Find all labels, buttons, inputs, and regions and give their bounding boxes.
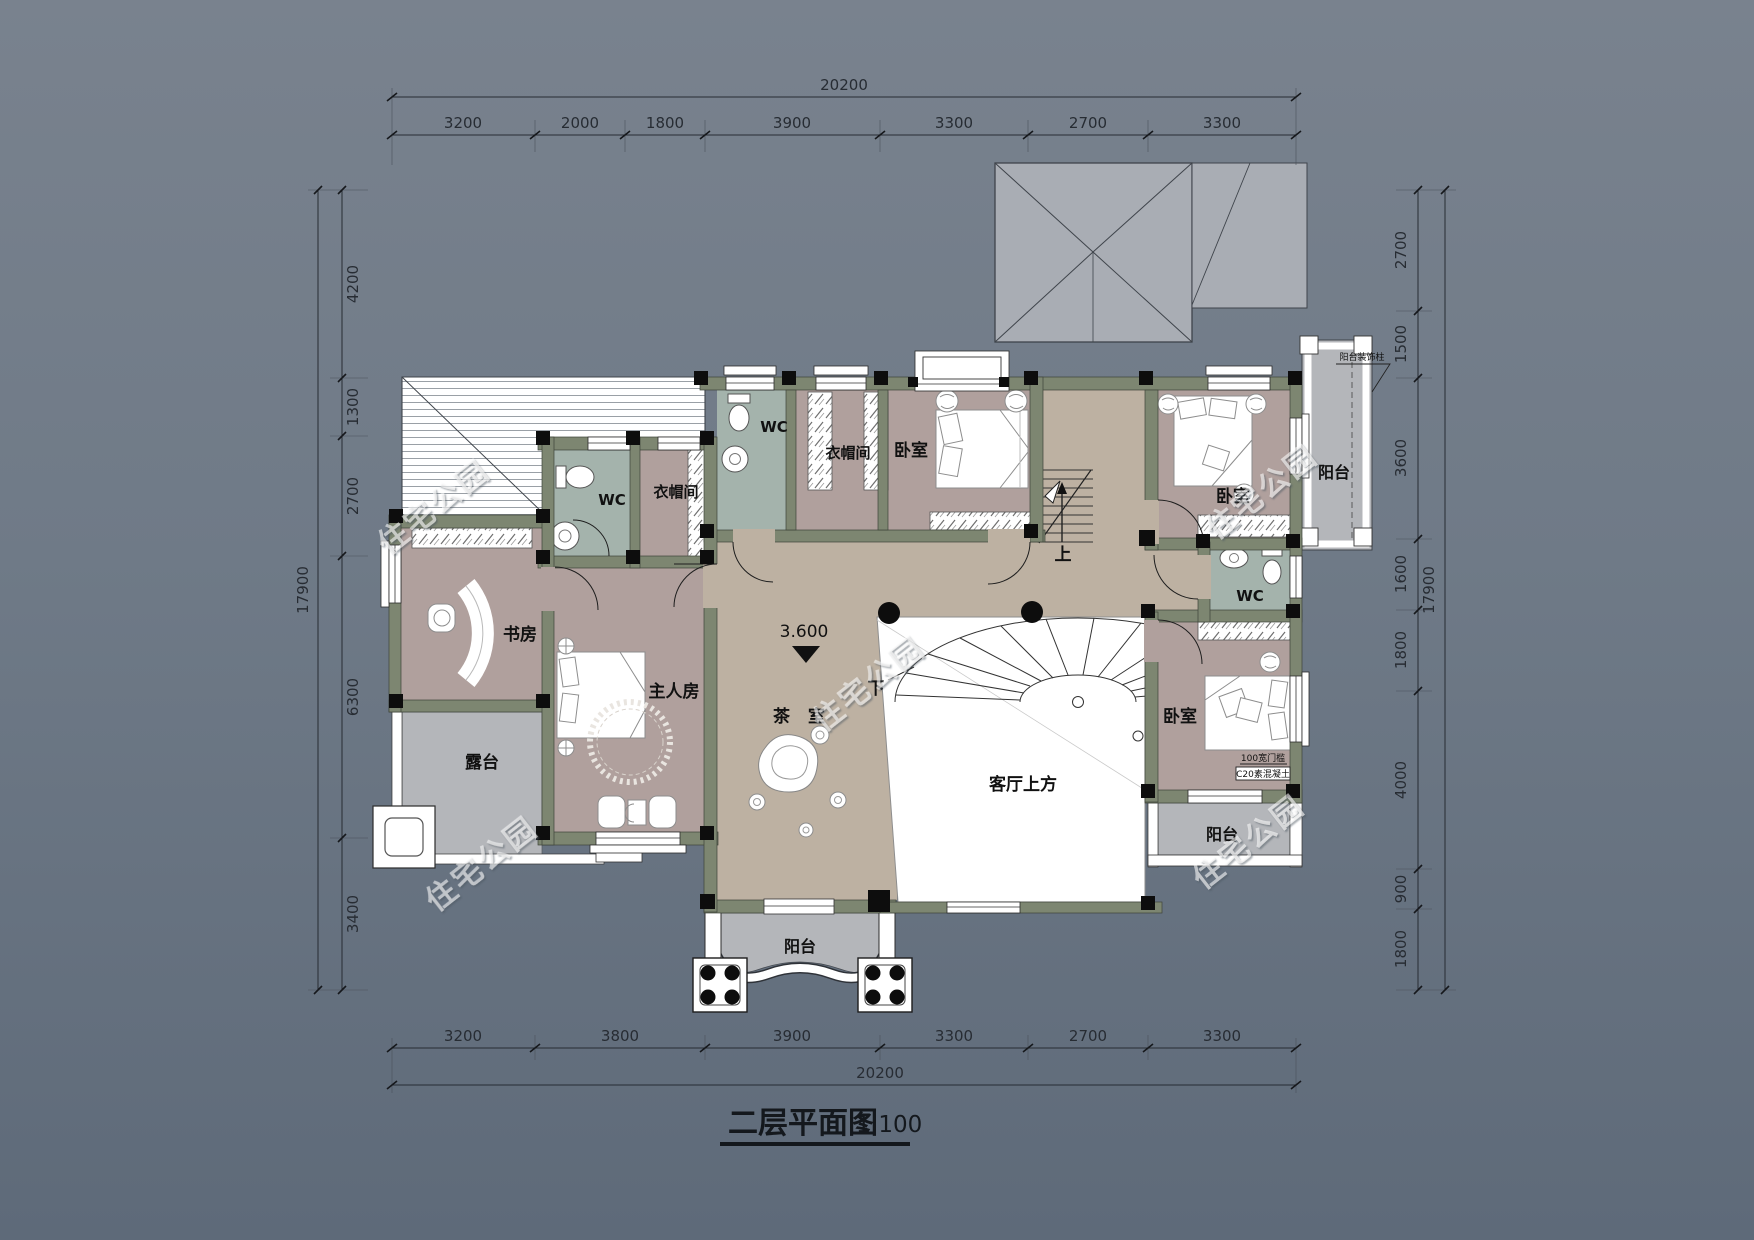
label-bedroom-right-bottom: 卧室 <box>1163 706 1197 727</box>
dim-bottom-total: 20200 <box>856 1064 904 1082</box>
label-balcony-bottom: 阳台 <box>784 937 816 956</box>
annotation-concrete: C20素混凝土 <box>1236 768 1290 780</box>
dim-right-total: 17900 <box>1420 566 1438 614</box>
dim-left-1: 4200 <box>344 265 362 303</box>
dim-bottom-5: 2700 <box>1069 1027 1107 1045</box>
dim-top-5: 3300 <box>935 114 973 132</box>
balcony-top-right <box>1300 336 1372 550</box>
label-wc-left: WC <box>598 491 626 509</box>
label-stair-up: 上 <box>1055 545 1072 565</box>
dim-top-4: 3900 <box>773 114 811 132</box>
dim-left-5: 3400 <box>344 895 362 933</box>
toilet-icon <box>556 466 566 488</box>
column-pedestal-left <box>693 958 747 1012</box>
dim-left-4: 6300 <box>344 678 362 716</box>
master-bed <box>557 638 645 756</box>
label-wc-top: WC <box>760 418 788 436</box>
sink-icon <box>551 522 579 550</box>
hip-roof <box>995 163 1192 342</box>
dim-right-1: 2700 <box>1392 231 1410 269</box>
dim-bottom-4: 3300 <box>935 1027 973 1045</box>
dim-top-2: 2000 <box>561 114 599 132</box>
label-cloak-top: 衣帽间 <box>825 444 870 462</box>
dim-right-2: 1500 <box>1392 325 1410 363</box>
label-floor-level: 3.600 <box>780 622 829 642</box>
dim-bottom-1: 3200 <box>444 1027 482 1045</box>
round-column <box>1021 601 1043 623</box>
floor-plan-drawing: 20200 3200 2000 1800 3900 3300 2700 3300… <box>0 0 1754 1240</box>
dim-bottom-2: 3800 <box>601 1027 639 1045</box>
floor-plan-page: 20200 3200 2000 1800 3900 3300 2700 3300… <box>0 0 1754 1240</box>
annotation-balcony-column: 阳台装饰柱 <box>1339 351 1384 363</box>
dim-right-6: 4000 <box>1392 761 1410 799</box>
column-pedestal-right <box>858 958 912 1012</box>
dim-right-8: 1800 <box>1392 930 1410 968</box>
dim-left-total: 17900 <box>294 566 312 614</box>
label-living-void: 客厅上方 <box>988 774 1057 795</box>
dim-right-7: 900 <box>1392 875 1410 904</box>
sink-icon <box>1220 548 1248 568</box>
dim-top-3: 1800 <box>646 114 684 132</box>
annotation-threshold: 100宽门槛 <box>1241 752 1285 764</box>
label-wc-right: WC <box>1236 587 1264 605</box>
dim-right-5: 1800 <box>1392 631 1410 669</box>
drawing-scale: 1:100 <box>856 1112 922 1138</box>
label-master: 主人房 <box>649 681 700 702</box>
label-cloak-left: 衣帽间 <box>653 483 698 501</box>
dim-left-3: 2700 <box>344 477 362 515</box>
label-terrace: 露台 <box>465 752 499 773</box>
dim-top-7: 3300 <box>1203 114 1241 132</box>
label-study: 书房 <box>503 624 537 645</box>
round-column <box>878 602 900 624</box>
dim-bottom-3: 3900 <box>773 1027 811 1045</box>
label-bedroom-top: 卧室 <box>894 440 928 461</box>
dim-bottom-6: 3300 <box>1203 1027 1241 1045</box>
toilet-icon <box>728 394 750 403</box>
sink-icon <box>722 446 748 472</box>
dim-left-2: 1300 <box>344 388 362 426</box>
dim-right-3: 3600 <box>1392 439 1410 477</box>
dim-top-1: 3200 <box>444 114 482 132</box>
master-seating <box>598 796 676 828</box>
dim-right-4: 1600 <box>1392 555 1410 593</box>
dim-top-6: 2700 <box>1069 114 1107 132</box>
side-roof <box>1192 163 1307 308</box>
dim-top-total: 20200 <box>820 76 868 94</box>
